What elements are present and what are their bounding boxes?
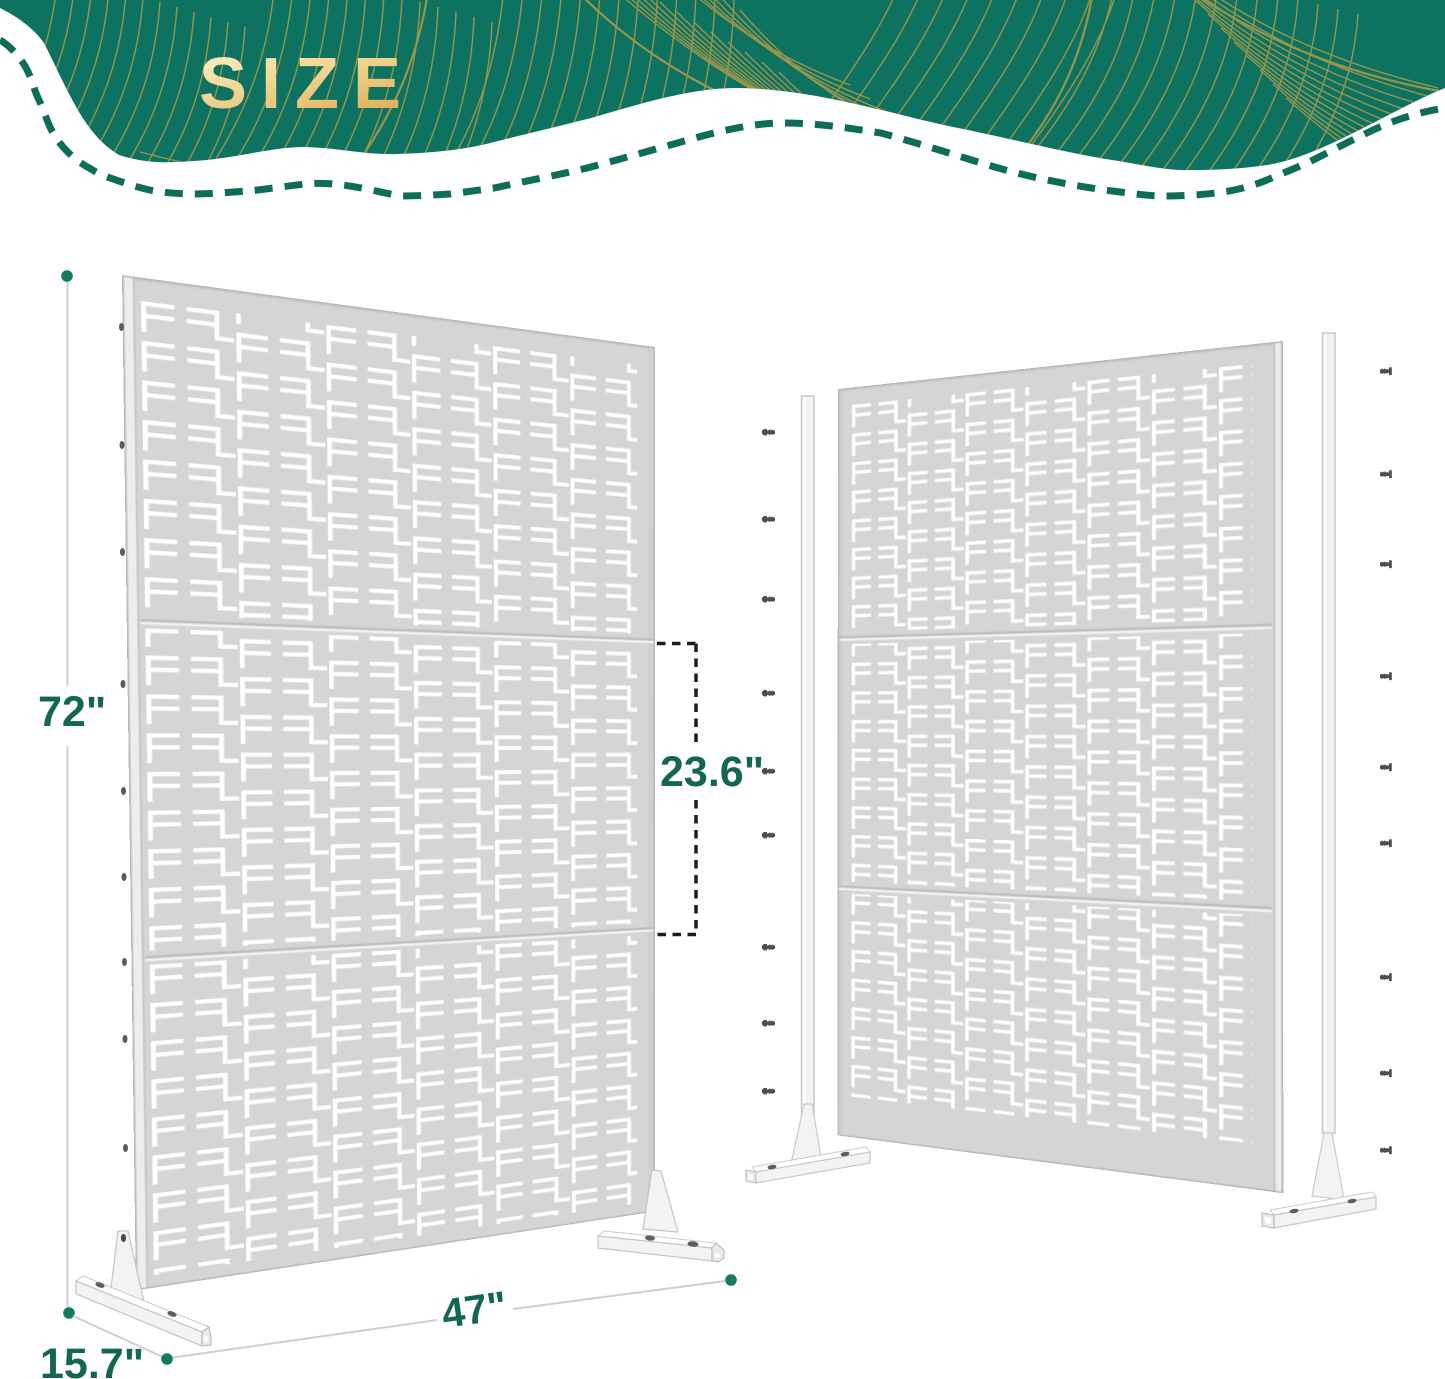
svg-text:15.7": 15.7" xyxy=(40,1340,144,1379)
svg-text:47": 47" xyxy=(439,1282,510,1337)
svg-text:23.6": 23.6" xyxy=(660,748,764,796)
svg-text:72": 72" xyxy=(38,688,106,736)
